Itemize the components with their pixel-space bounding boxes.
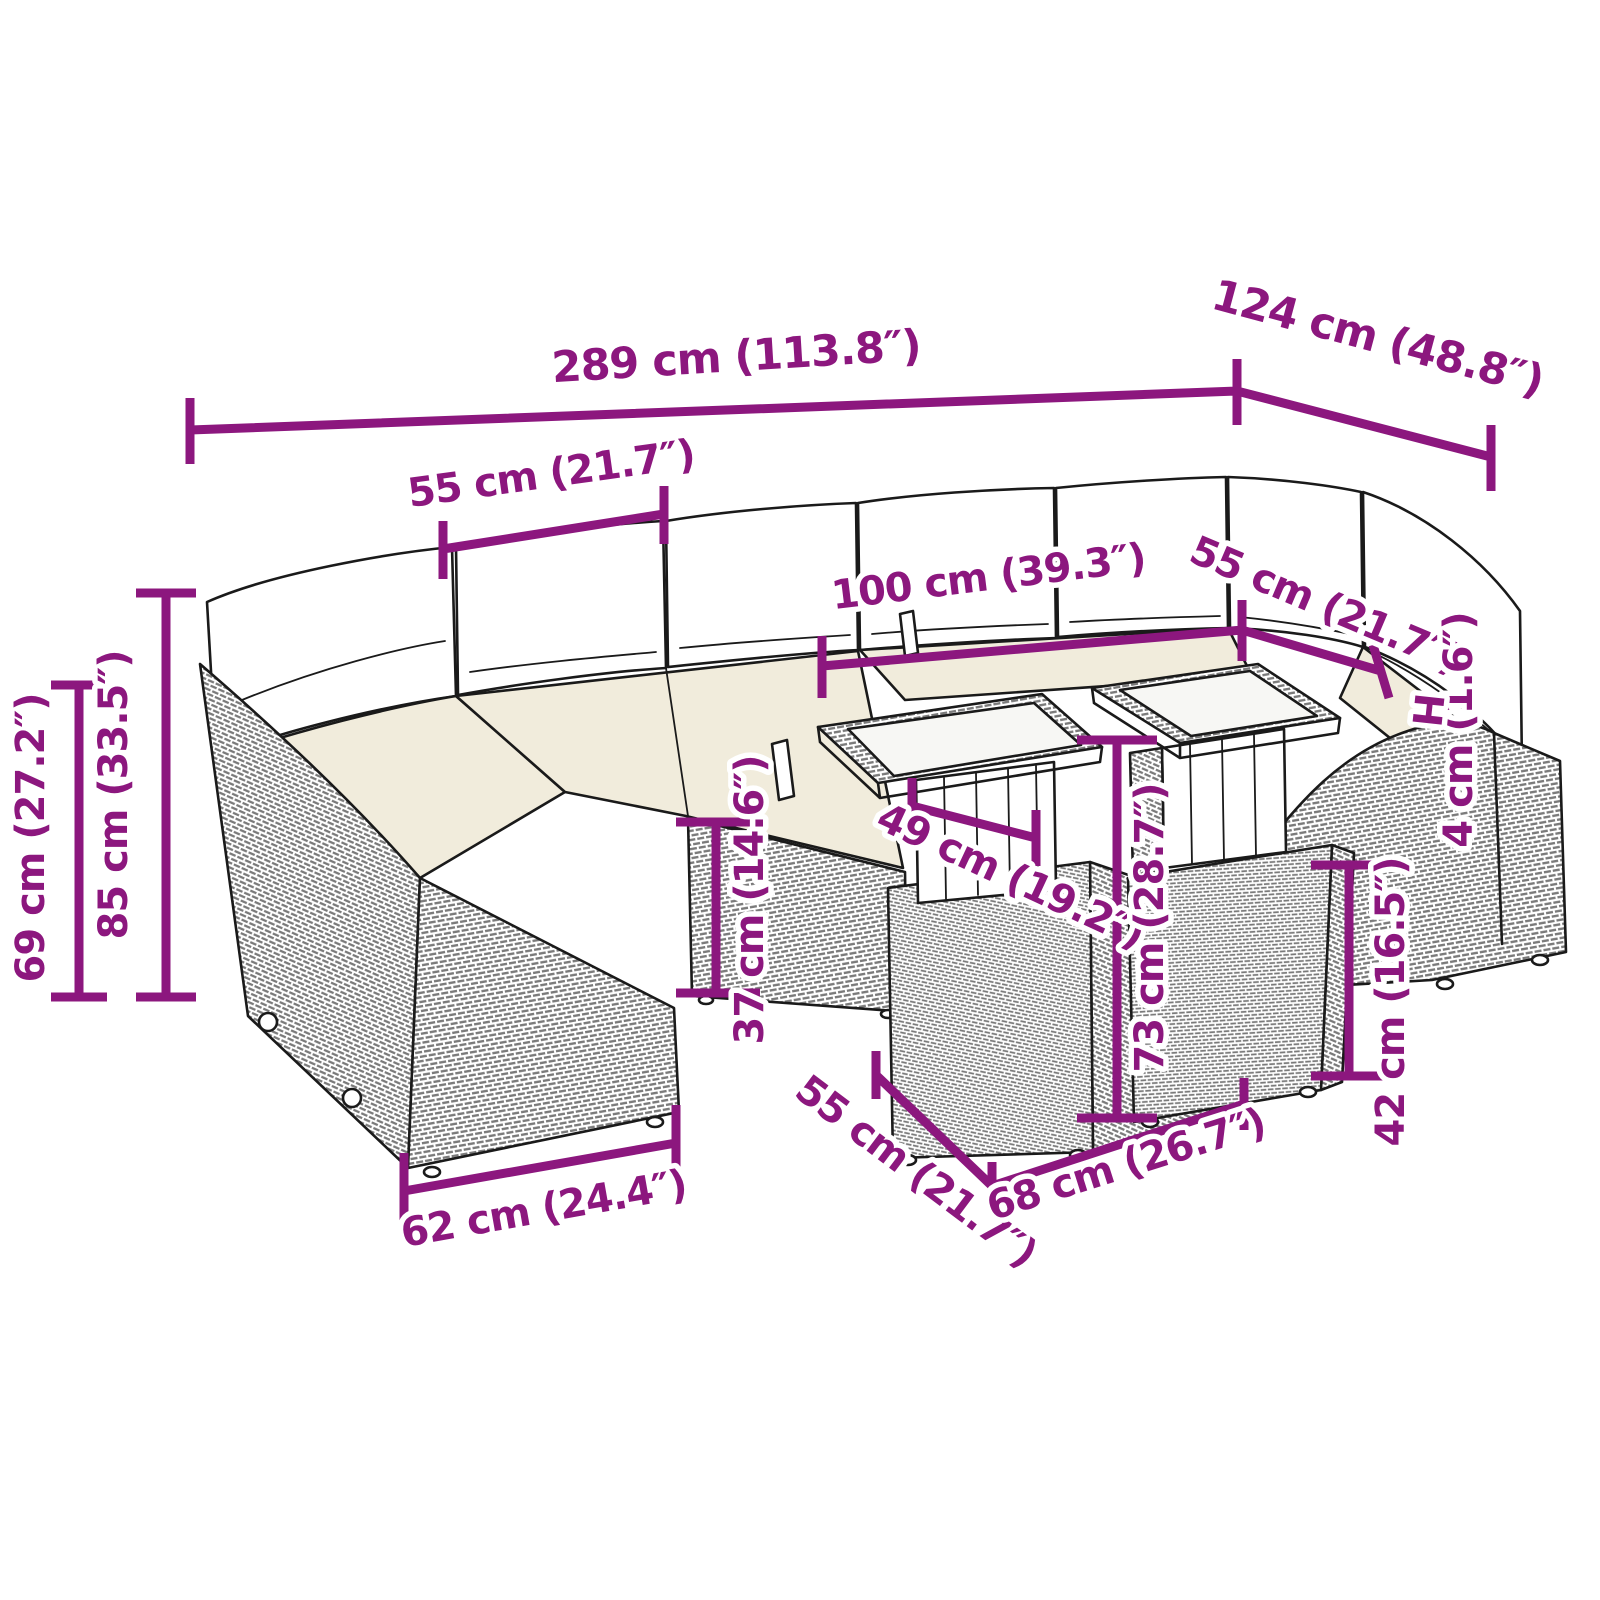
- dim-label-total-width: 289 cm (113.8″): [550, 321, 922, 393]
- foot: [1300, 1087, 1316, 1097]
- drainage-hole: [259, 1013, 277, 1031]
- dim-line-total: [190, 359, 1491, 491]
- dim-label-armrest-height: 69 cm (27.2″): [8, 693, 54, 982]
- dim-line-height-85: [136, 593, 196, 997]
- dim-label-module-top-width: 55 cm (21.7″): [405, 431, 698, 517]
- foot: [1532, 955, 1548, 965]
- glass-thickness-marker: H: [1402, 691, 1451, 728]
- foot: [647, 1117, 663, 1127]
- dim-label-module-depth: 62 cm (24.4″): [397, 1161, 690, 1256]
- dim-label-total-depth: 124 cm (48.8″): [1207, 270, 1549, 406]
- foot: [1437, 979, 1453, 989]
- dim-label-glass-thickness: 4 cm (1.6″): [1436, 612, 1482, 847]
- foot: [424, 1167, 440, 1177]
- dim-label-seat-height: 37 cm (14.6″): [727, 755, 773, 1044]
- dim-label-side-table-height: 42 cm (16.5″): [1368, 857, 1414, 1146]
- diagram-svg: 289 cm (113.8″) 124 cm (48.8″) 55 cm (21…: [0, 0, 1600, 1600]
- back-pillow: [666, 503, 858, 667]
- dim-label-table-height: 73 cm (28.7″): [1127, 783, 1173, 1072]
- dimension-diagram: 289 cm (113.8″) 124 cm (48.8″) 55 cm (21…: [0, 0, 1600, 1600]
- left-module-front-face: [408, 878, 679, 1168]
- dim-label-total-height: 85 cm (33.5″): [91, 650, 137, 939]
- drainage-hole: [343, 1089, 361, 1107]
